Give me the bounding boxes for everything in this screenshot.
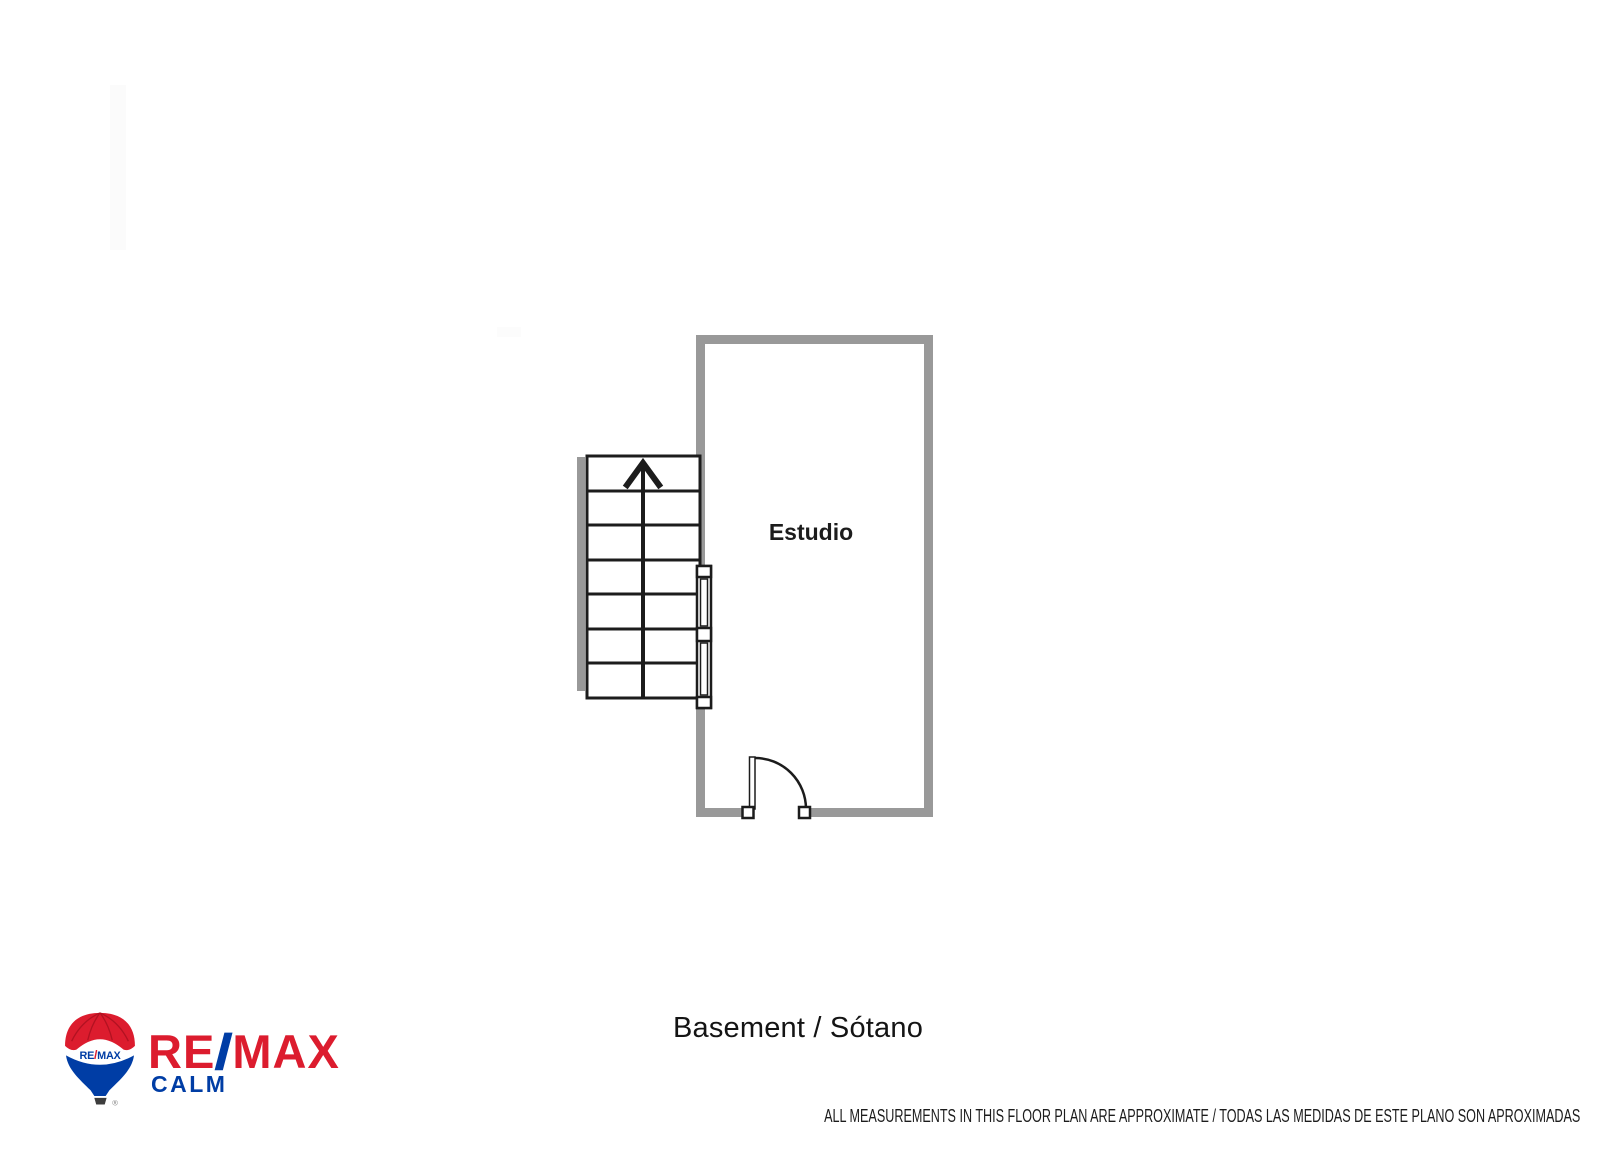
window-symbols (697, 566, 711, 708)
wordmark-slash-icon: / (216, 1028, 232, 1075)
wordmark-max: MAX (232, 1028, 339, 1075)
door-hinge-block (743, 807, 754, 818)
wall-bottom-left-segment (696, 808, 743, 817)
remax-balloon-icon: RE/MAX ® (60, 1010, 140, 1112)
door-latch-block (799, 807, 810, 818)
window-cap (697, 697, 711, 708)
window-pane (701, 579, 708, 626)
floorplan-page: Estudio Basement / Sótano ALL MEASUREMEN… (0, 0, 1600, 1153)
office-name: CALM (151, 1073, 227, 1096)
window-cap (697, 566, 711, 577)
door-leaf (750, 757, 756, 809)
remax-wordmark: RE / MAX (148, 1028, 340, 1075)
room-label: Estudio (769, 519, 853, 545)
balloon-basket (94, 1098, 106, 1105)
disclaimer-text: ALL MEASUREMENTS IN THIS FLOOR PLAN ARE … (824, 1106, 1580, 1127)
balloon-brand-text: RE/MAX (80, 1048, 122, 1062)
staircase (587, 456, 700, 698)
wall-bottom-right-segment (810, 808, 933, 817)
door (743, 757, 811, 818)
door-swing-arc (755, 758, 806, 809)
window-cap (697, 628, 711, 641)
wall-top (696, 335, 933, 344)
window-pane (701, 643, 708, 695)
wall-right (924, 335, 933, 817)
registered-mark: ® (112, 1098, 118, 1107)
stairwell-side-wall (577, 457, 585, 691)
balloon-red-canopy (65, 1013, 135, 1050)
floor-plan-drawing: Estudio (0, 0, 1600, 1153)
wordmark-re: RE (148, 1028, 215, 1075)
